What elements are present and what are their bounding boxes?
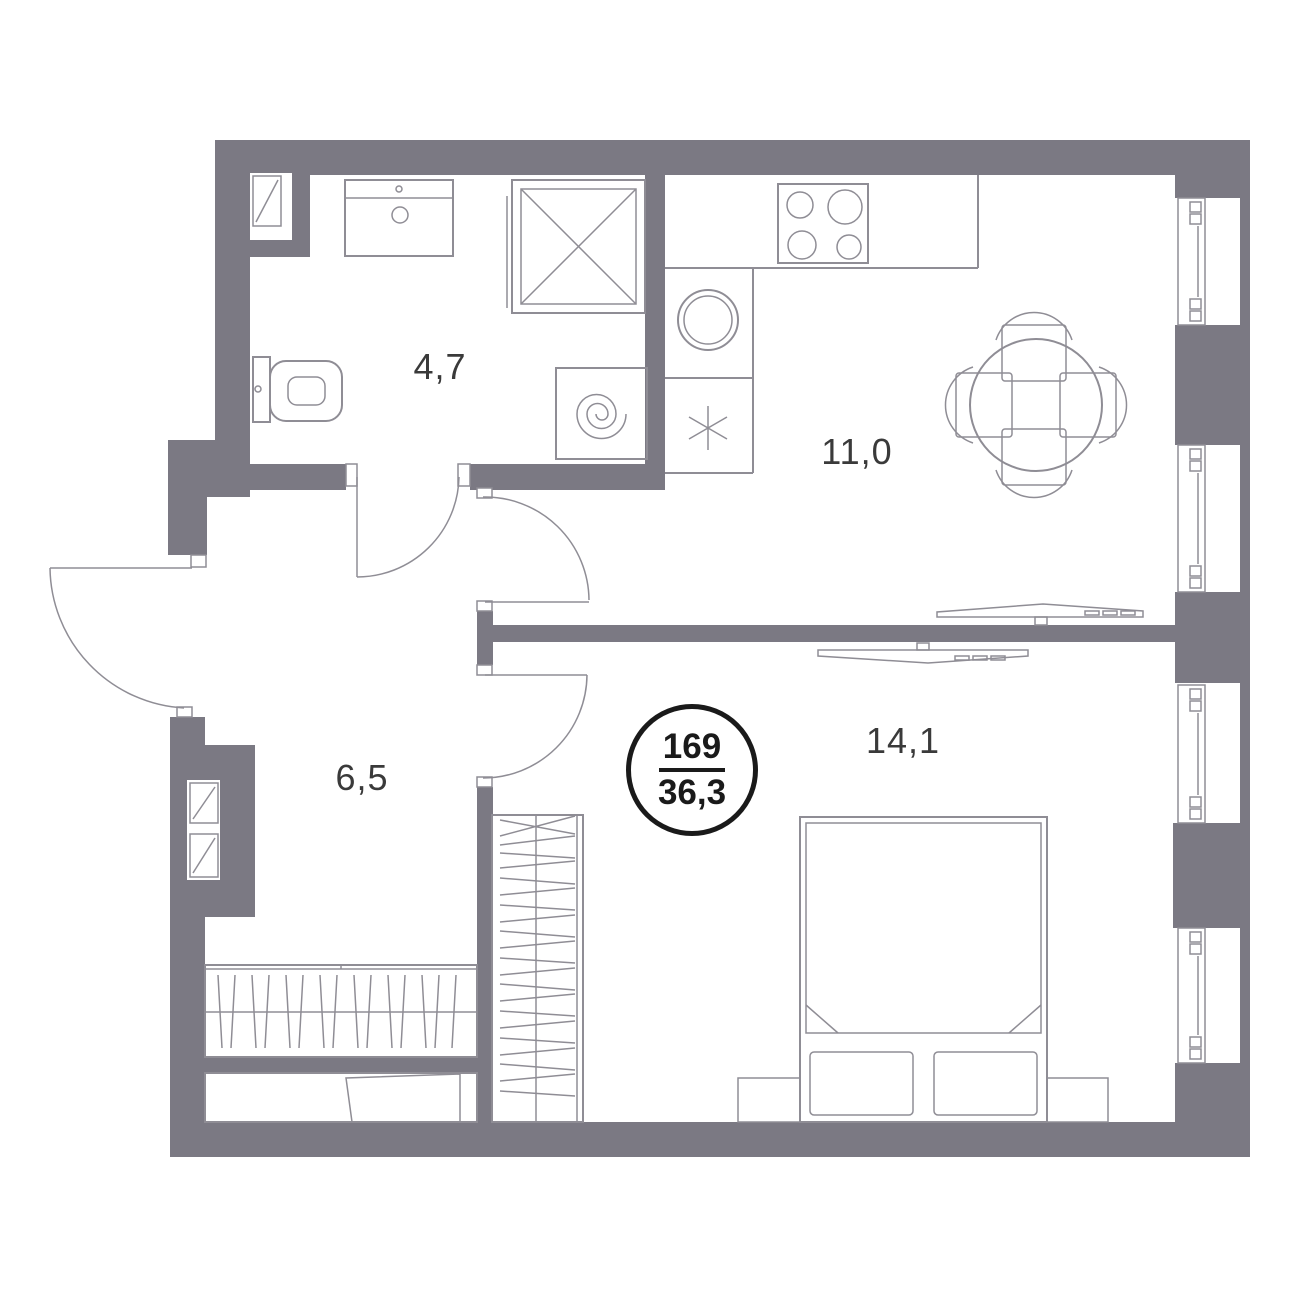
dining-table-icon [945,312,1126,497]
nightstand-icon [1047,1078,1108,1122]
electrical-panel-icon [187,780,220,880]
bedroom-door [477,665,587,787]
door-frame [177,707,192,717]
pillow-icon [810,1052,913,1115]
utility-shaft [250,173,292,240]
fridge-icon [689,406,727,450]
badge-divider [659,768,725,772]
pillow-icon [934,1052,1037,1115]
door-frame [346,464,357,486]
room-area-label-bedroom: 14,1 [866,720,940,762]
kitchen-door [477,488,589,611]
sink-icon [345,180,453,256]
washing-machine-icon [556,368,647,459]
door-swing-arc [50,568,184,708]
unit-total-area: 36,3 [658,774,726,813]
shower-icon [507,180,645,313]
floor-plan-drawing [0,0,1300,1300]
entrance-door [50,555,206,717]
room-area-label-kitchen-living: 11,0 [821,431,892,473]
bathroom-door [346,464,470,577]
toilet-icon [253,357,342,422]
stove-icon [778,184,868,263]
shoe-bench-icon [205,1073,477,1122]
window-bedroom-1 [1178,685,1205,823]
unit-area-badge: 169 36,3 [626,704,758,836]
wardrobe-icon [492,815,583,1122]
walls [168,140,1250,1157]
door-frame [477,665,492,675]
window-bedroom-2 [1178,928,1205,1063]
kitchen-counter [665,175,978,473]
door-swing-arc [357,477,459,577]
door-swing-arc [483,675,587,778]
kitchen-sink-icon [678,290,738,350]
nightstand-icon [738,1078,800,1122]
unit-number: 169 [663,728,721,767]
tv-icon [937,604,1143,625]
room-area-label-hallway: 6,5 [335,757,388,799]
room-area-label-bathroom: 4,7 [413,346,466,388]
closet-icon [205,965,477,1057]
window-living [1178,445,1205,592]
floor-plan: 4,7 11,0 6,5 14,1 169 36,3 [0,0,1300,1300]
door-swing-arc [483,497,589,600]
door-frame [191,555,206,567]
window-kitchen-living [1178,198,1205,325]
bed-icon [800,817,1047,1122]
tv-icon [818,643,1028,663]
door-frame [458,464,470,486]
